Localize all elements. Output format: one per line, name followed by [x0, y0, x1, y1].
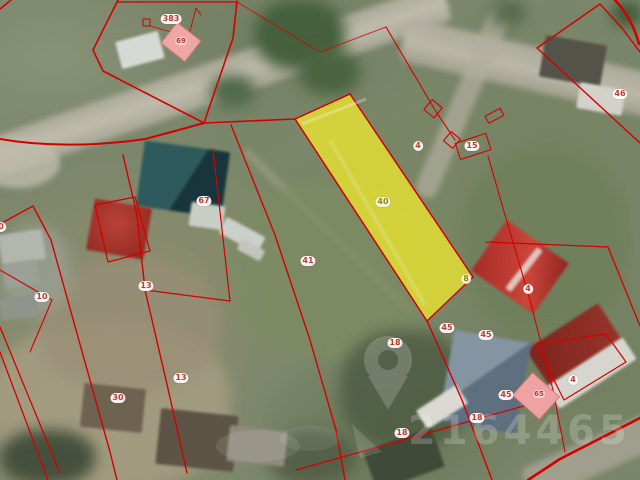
parcel-label-4[interactable]: 4 [413, 141, 423, 151]
parcel-label-383[interactable]: 383 [161, 14, 182, 24]
parcel-label-69[interactable]: 69 [175, 37, 187, 45]
map-viewport[interactable]: 2164465 38369464156740041813410454518134… [0, 0, 640, 480]
parcel-label-4[interactable]: 4 [568, 375, 578, 385]
parcel-label-10[interactable]: 10 [34, 292, 49, 302]
parcel-label-67[interactable]: 67 [196, 196, 211, 206]
parcel-labels-layer: 3836946415674004181341045451813465453018… [0, 0, 640, 480]
parcel-label-41[interactable]: 41 [300, 256, 315, 266]
parcel-label-4[interactable]: 4 [523, 284, 533, 294]
parcel-label-45[interactable]: 45 [478, 330, 493, 340]
parcel-label-40[interactable]: 40 [375, 197, 390, 207]
parcel-label-45[interactable]: 45 [439, 323, 454, 333]
parcel-label-45[interactable]: 45 [498, 390, 513, 400]
parcel-label-18[interactable]: 18 [469, 413, 484, 423]
parcel-label-18[interactable]: 18 [387, 338, 402, 348]
parcel-label-13[interactable]: 13 [138, 281, 153, 291]
parcel-label-0[interactable]: 0 [0, 222, 6, 232]
parcel-label-65[interactable]: 65 [533, 390, 545, 398]
parcel-label-30[interactable]: 30 [110, 393, 125, 403]
parcel-label-18[interactable]: 18 [394, 428, 409, 438]
parcel-label-46[interactable]: 46 [612, 89, 627, 99]
parcel-label-8[interactable]: 8 [461, 274, 471, 284]
parcel-label-15[interactable]: 15 [464, 141, 479, 151]
parcel-label-13[interactable]: 13 [173, 373, 188, 383]
